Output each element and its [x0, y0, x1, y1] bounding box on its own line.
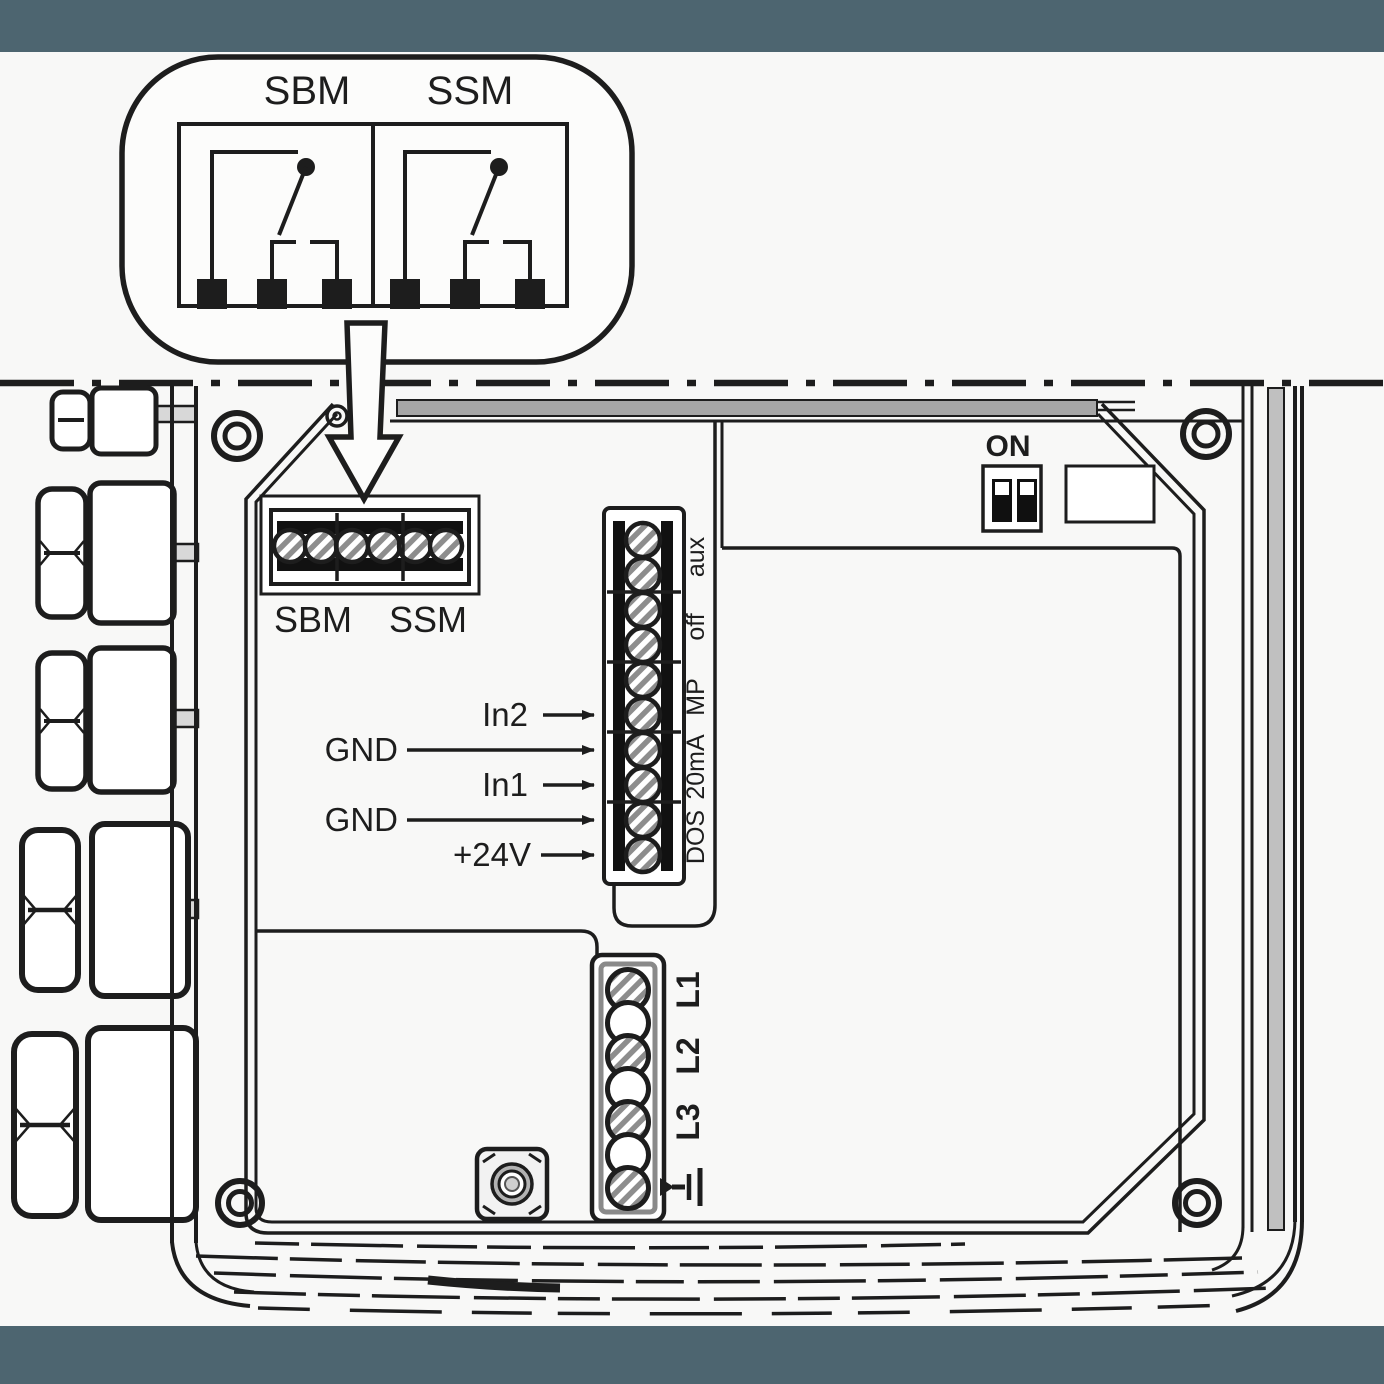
bottom-band	[0, 1326, 1384, 1384]
cover-top-gray-strip	[397, 400, 1097, 416]
io-label-gnd-2: GND	[325, 801, 398, 838]
power-label-l2: L2	[670, 1037, 706, 1074]
terminal-pin	[199, 281, 225, 307]
cable-gland-5	[14, 1028, 196, 1220]
strip-label-aux: aux	[682, 536, 710, 577]
terminal-pin	[392, 281, 418, 307]
callout-balloon: SBM SSM	[122, 57, 632, 362]
terminal-pin	[324, 281, 350, 307]
connector-slot	[1066, 466, 1154, 522]
terminal-pin	[259, 281, 285, 307]
terminal-pin	[517, 281, 543, 307]
callout-sbm-label: SBM	[264, 69, 351, 113]
strip-label-mp: MP	[682, 678, 710, 716]
power-labels: L1 L2 L3	[670, 971, 706, 1140]
dip-toggle-1[interactable]	[992, 479, 1012, 522]
power-label-l3: L3	[670, 1103, 706, 1140]
dip-switch-label: ON	[986, 430, 1031, 463]
io-label-gnd-1: GND	[325, 731, 398, 768]
io-label-in2: In2	[482, 696, 528, 733]
board-sbm-label: SBM	[274, 599, 352, 640]
grounding-screw	[477, 1149, 547, 1219]
wiring-diagram-page: ON SBM SSM	[0, 0, 1384, 1384]
terminal-wiring-diagram: ON SBM SSM	[0, 0, 1384, 1384]
io-label-24v: +24V	[453, 836, 531, 873]
callout-ssm-label: SSM	[427, 69, 514, 113]
power-label-l1: L1	[670, 971, 706, 1008]
io-label-in1: In1	[482, 766, 528, 803]
strip-label-off: off	[682, 613, 710, 640]
signal-terminal-strip: aux off MP 20mA DOS	[604, 508, 710, 884]
dip-toggle-2[interactable]	[1017, 479, 1037, 522]
top-band	[0, 0, 1384, 52]
power-block-screws	[608, 970, 649, 1209]
board-ssm-label: SSM	[389, 599, 467, 640]
strip-label-20ma: 20mA	[682, 734, 710, 800]
strip-label-dos: DOS	[682, 810, 710, 864]
terminal-pin	[452, 281, 478, 307]
